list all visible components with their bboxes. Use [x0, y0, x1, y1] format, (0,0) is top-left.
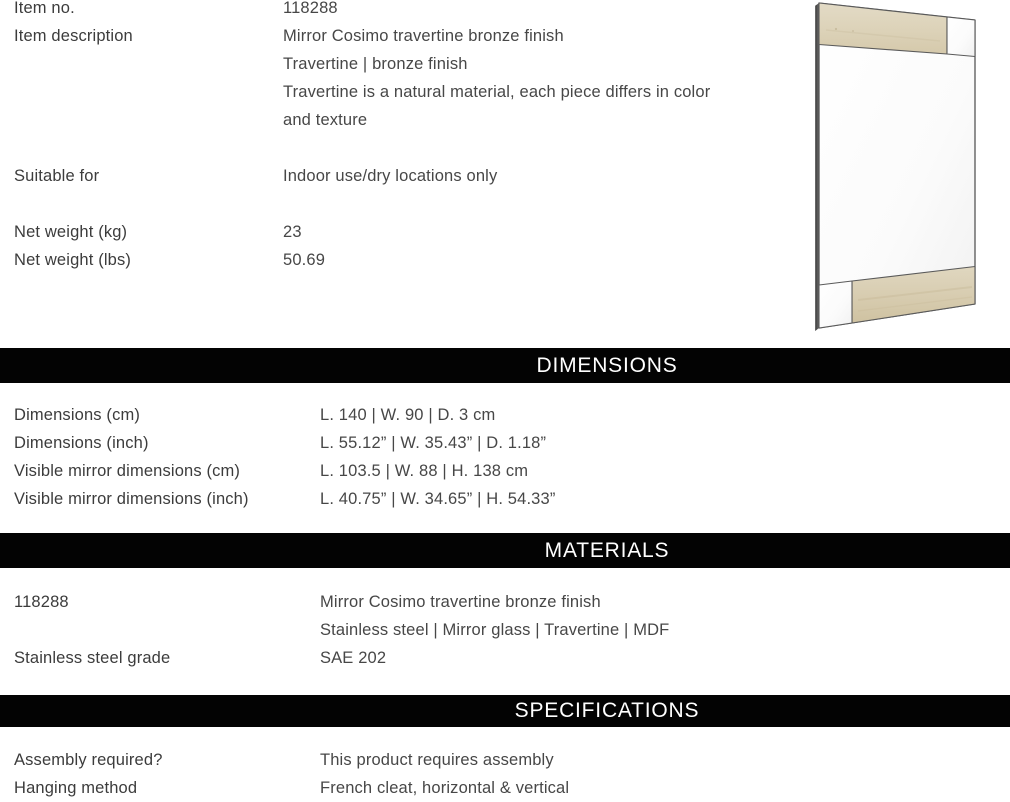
- travertine-panel-top: [819, 3, 947, 54]
- section-heading: MATERIALS: [545, 539, 670, 563]
- table-row: Stainless steel grade SAE 202: [14, 644, 669, 672]
- field-label: Hanging method: [14, 774, 320, 802]
- table-row: Net weight (lbs) 50.69: [14, 246, 710, 274]
- table-row: Visible mirror dimensions (inch) L. 40.7…: [14, 485, 555, 513]
- product-photo: [806, 0, 988, 333]
- field-value: Travertine | bronze finish: [283, 50, 468, 78]
- table-row: 118288 Mirror Cosimo travertine bronze f…: [14, 588, 669, 616]
- field-label: Item description: [14, 22, 283, 50]
- table-row: Suitable for Indoor use/dry locations on…: [14, 162, 710, 190]
- field-label: Suitable for: [14, 162, 283, 190]
- field-value: Stainless steel | Mirror glass | Travert…: [320, 616, 669, 644]
- field-value: Travertine is a natural material, each p…: [283, 78, 710, 106]
- field-value: Mirror Cosimo travertine bronze finish: [320, 588, 601, 616]
- field-label: 118288: [14, 588, 320, 616]
- section-banner-dimensions: DIMENSIONS: [0, 348, 1010, 383]
- table-row: Item description Mirror Cosimo travertin…: [14, 22, 710, 50]
- field-label: Item no.: [14, 0, 283, 22]
- field-label: Stainless steel grade: [14, 644, 320, 672]
- mirror-product-illustration: [806, 0, 988, 333]
- field-value: French cleat, horizontal & vertical: [320, 774, 569, 802]
- field-value: 118288: [283, 0, 338, 22]
- field-value: This product requires assembly: [320, 746, 554, 774]
- field-label: Dimensions (cm): [14, 401, 320, 429]
- field-label: Net weight (kg): [14, 218, 283, 246]
- section-banner-materials: MATERIALS: [0, 533, 1010, 568]
- field-value: L. 40.75” | W. 34.65” | H. 54.33”: [320, 485, 555, 513]
- field-value: Indoor use/dry locations only: [283, 162, 497, 190]
- mirror-square-bottom-left: [819, 281, 852, 328]
- table-row: Visible mirror dimensions (cm) L. 103.5 …: [14, 457, 555, 485]
- section-heading: DIMENSIONS: [536, 354, 677, 378]
- section-banner-specifications: SPECIFICATIONS: [0, 695, 1010, 727]
- field-label: Dimensions (inch): [14, 429, 320, 457]
- field-label: Visible mirror dimensions (inch): [14, 485, 320, 513]
- field-value: 50.69: [283, 246, 325, 274]
- mirror-square-top-right: [947, 17, 975, 57]
- item-info-table: Item no. 118288 Item description Mirror …: [14, 0, 710, 274]
- materials-table: 118288 Mirror Cosimo travertine bronze f…: [14, 588, 669, 672]
- field-value: and texture: [283, 106, 367, 134]
- field-value: L. 103.5 | W. 88 | H. 138 cm: [320, 457, 528, 485]
- table-row: Item no. 118288: [14, 0, 710, 22]
- field-value: Mirror Cosimo travertine bronze finish: [283, 22, 564, 50]
- table-row: Travertine is a natural material, each p…: [14, 78, 710, 106]
- dimensions-table: Dimensions (cm) L. 140 | W. 90 | D. 3 cm…: [14, 401, 555, 513]
- section-heading: SPECIFICATIONS: [515, 699, 700, 723]
- specifications-table: Assembly required? This product requires…: [14, 746, 569, 802]
- field-label: Visible mirror dimensions (cm): [14, 457, 320, 485]
- table-row: Dimensions (inch) L. 55.12” | W. 35.43” …: [14, 429, 555, 457]
- table-row: Dimensions (cm) L. 140 | W. 90 | D. 3 cm: [14, 401, 555, 429]
- table-row: Assembly required? This product requires…: [14, 746, 569, 774]
- field-value: L. 55.12” | W. 35.43” | D. 1.18”: [320, 429, 546, 457]
- table-row: Travertine | bronze finish: [14, 50, 710, 78]
- field-label: Assembly required?: [14, 746, 320, 774]
- table-row: Net weight (kg) 23: [14, 218, 710, 246]
- field-value: 23: [283, 218, 302, 246]
- field-value: SAE 202: [320, 644, 386, 672]
- field-value: L. 140 | W. 90 | D. 3 cm: [320, 401, 495, 429]
- table-row: Stainless steel | Mirror glass | Travert…: [14, 616, 669, 644]
- field-label: Net weight (lbs): [14, 246, 283, 274]
- table-row: and texture: [14, 106, 710, 134]
- table-row: Hanging method French cleat, horizontal …: [14, 774, 569, 802]
